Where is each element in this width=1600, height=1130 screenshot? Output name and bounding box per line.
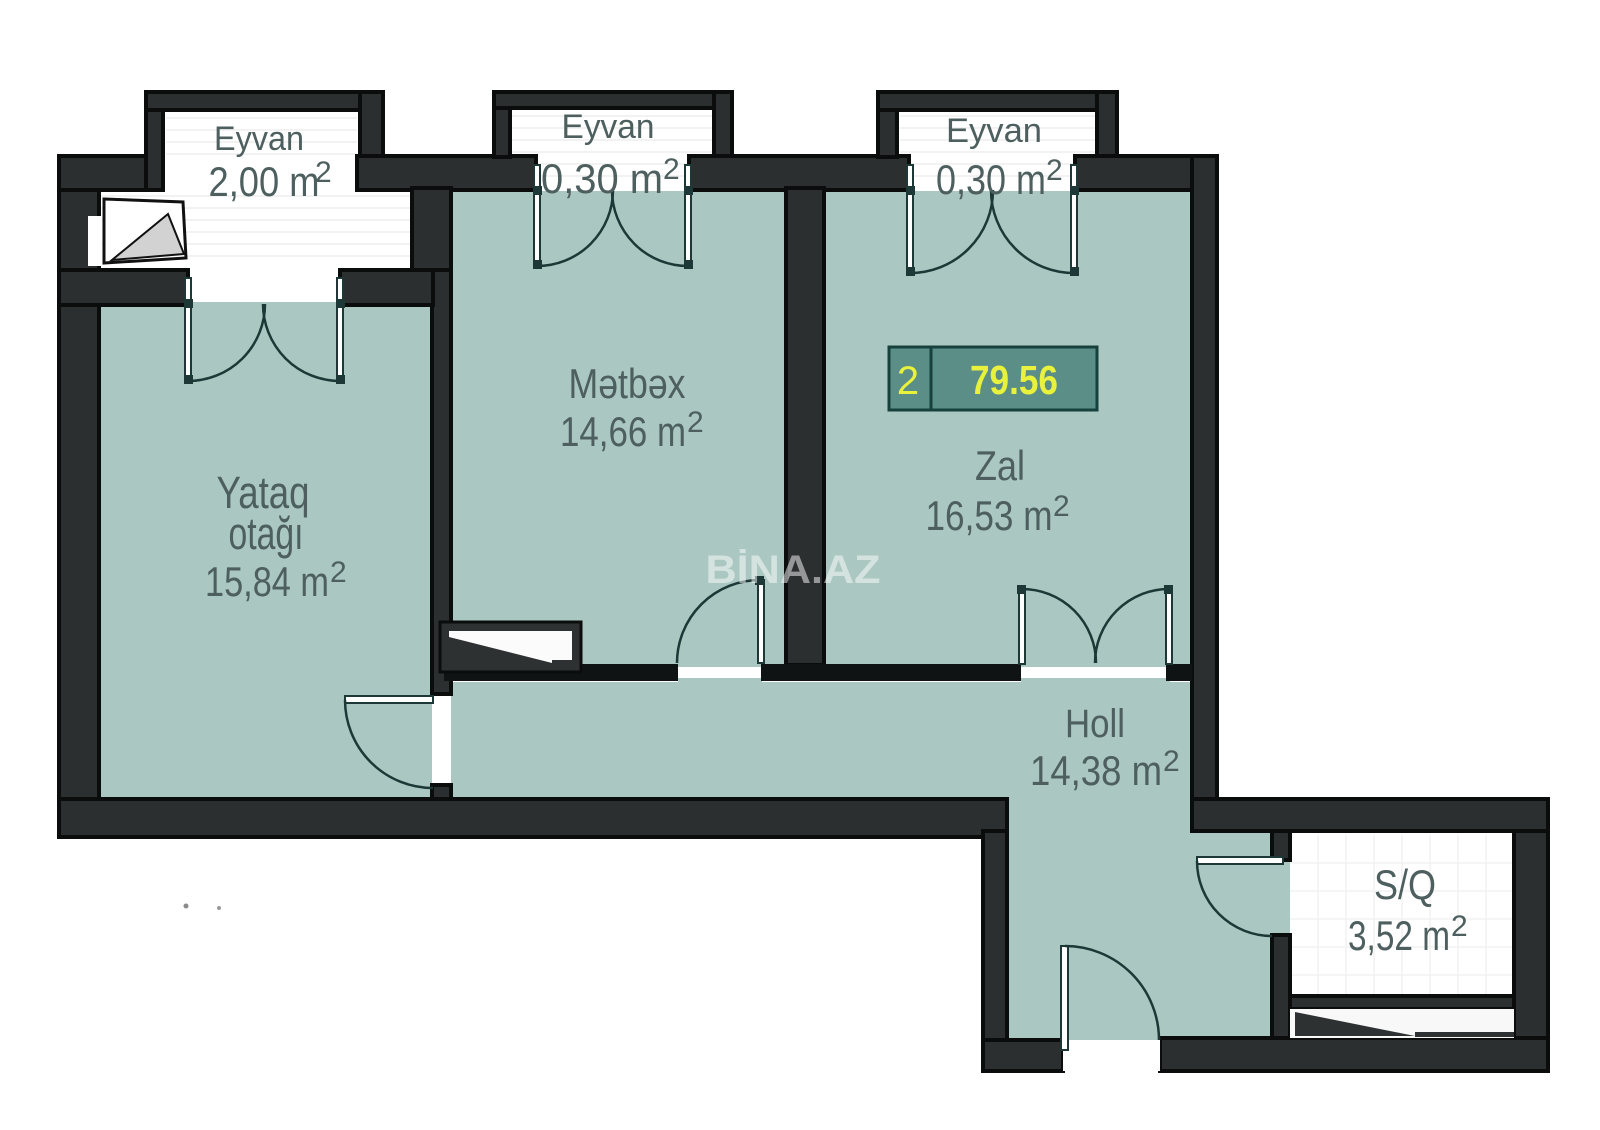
svg-text:Eyvan: Eyvan xyxy=(562,108,655,146)
svg-text:2: 2 xyxy=(1451,910,1468,943)
svg-text:79.56: 79.56 xyxy=(970,357,1058,403)
svg-text:2,00 m: 2,00 m xyxy=(209,158,320,205)
svg-text:2: 2 xyxy=(315,156,332,189)
svg-text:Eyvan: Eyvan xyxy=(214,120,304,158)
svg-text:S/Q: S/Q xyxy=(1374,861,1436,908)
svg-text:Holl: Holl xyxy=(1065,702,1125,746)
svg-text:2: 2 xyxy=(1046,154,1063,187)
svg-text:0,30 m: 0,30 m xyxy=(541,155,663,202)
svg-text:15,84 m: 15,84 m xyxy=(205,558,329,605)
svg-text:3,52 m: 3,52 m xyxy=(1348,912,1450,959)
svg-text:otağı: otağı xyxy=(229,508,304,559)
svg-text:2: 2 xyxy=(1053,490,1070,523)
svg-text:14,66 m: 14,66 m xyxy=(560,408,686,455)
svg-text:14,38 m: 14,38 m xyxy=(1030,747,1162,794)
svg-text:2: 2 xyxy=(1163,745,1180,778)
svg-text:2: 2 xyxy=(330,556,347,589)
svg-text:2: 2 xyxy=(663,153,680,186)
svg-text:Mətbəx: Mətbəx xyxy=(569,360,686,407)
svg-text:0,30 m: 0,30 m xyxy=(936,156,1046,203)
svg-text:Zal: Zal xyxy=(975,442,1025,489)
svg-text:2: 2 xyxy=(687,406,704,439)
svg-text:BİNA.AZ: BİNA.AZ xyxy=(706,548,881,592)
svg-text:16,53 m: 16,53 m xyxy=(926,492,1053,539)
svg-text:2: 2 xyxy=(897,359,919,403)
svg-text:Eyvan: Eyvan xyxy=(946,112,1042,150)
